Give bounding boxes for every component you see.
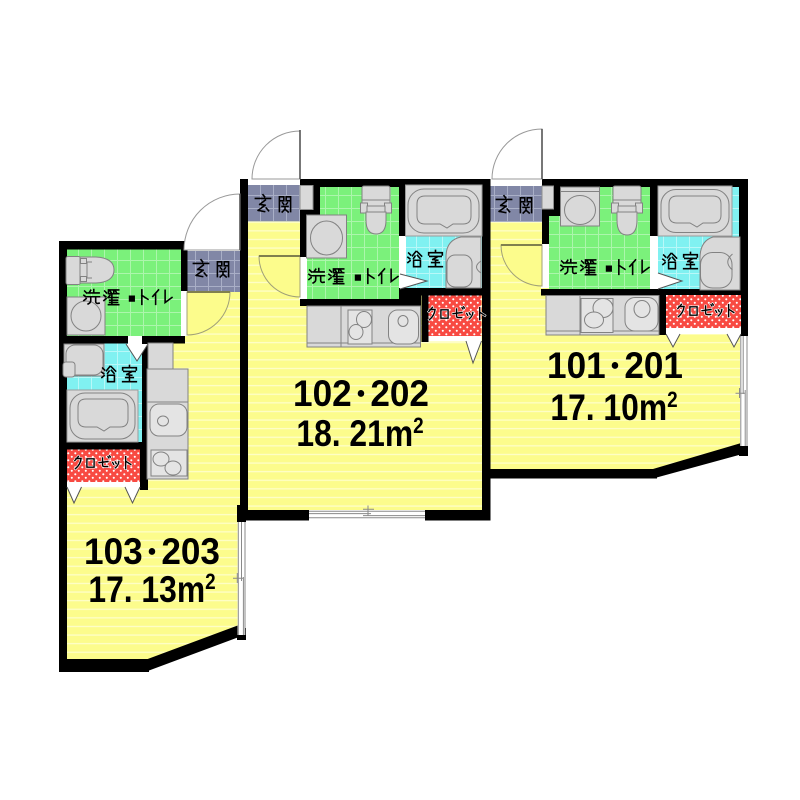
svg-text:18. 21m2: 18. 21m2 bbox=[296, 414, 423, 455]
svg-text:17. 10m2: 17. 10m2 bbox=[550, 388, 677, 429]
svg-text:17. 13m2: 17. 13m2 bbox=[88, 570, 215, 611]
